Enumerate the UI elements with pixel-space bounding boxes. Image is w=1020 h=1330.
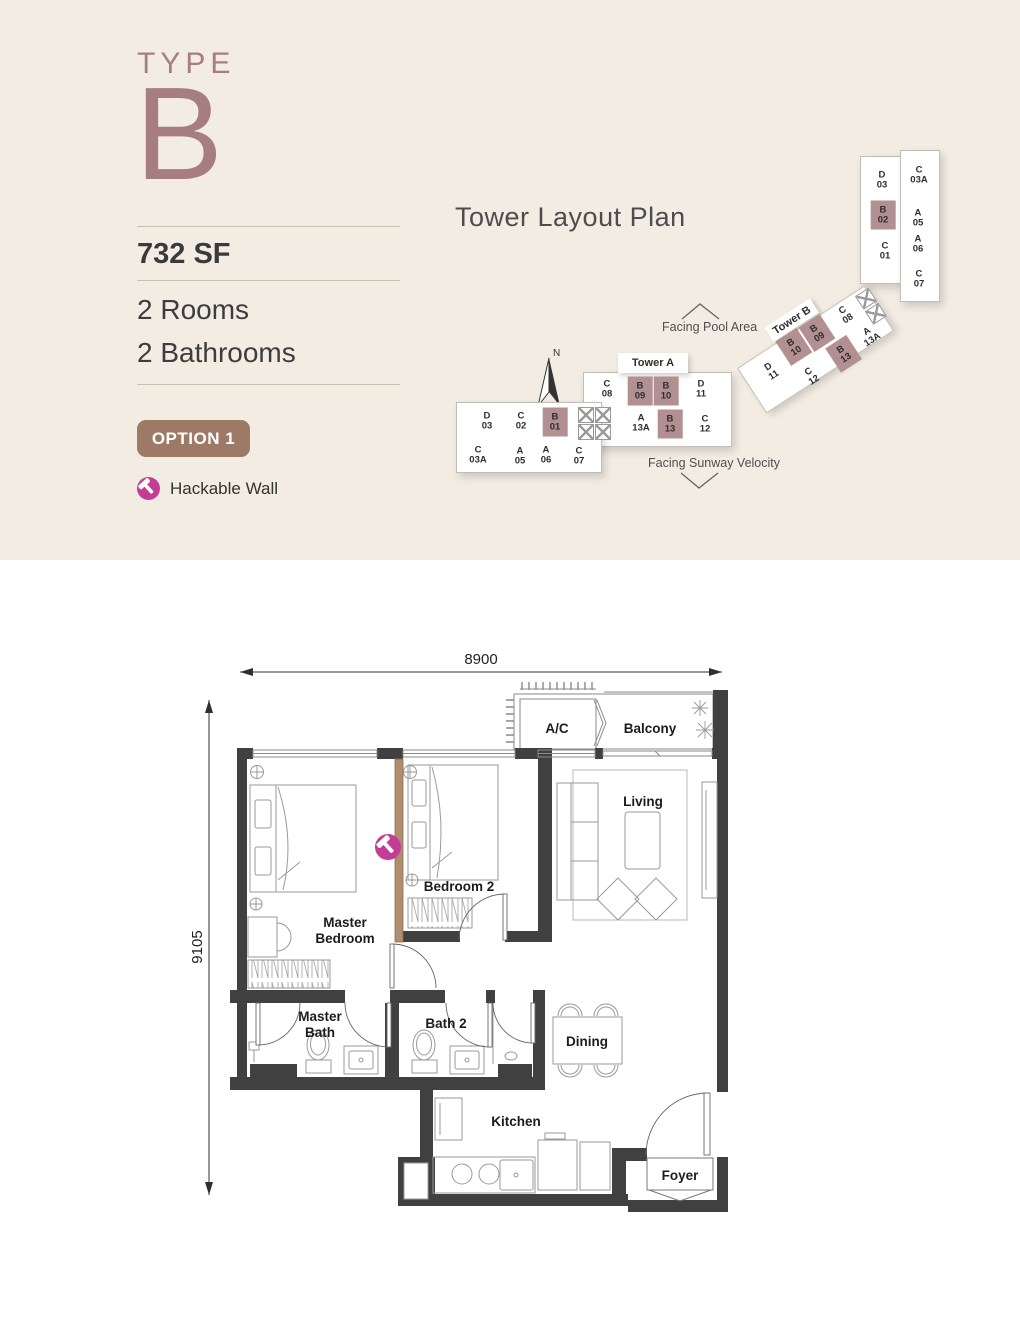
unit-cell-highlighted: B 02 bbox=[871, 201, 896, 230]
unit-cell: C 02 bbox=[516, 412, 527, 431]
unit-cell-highlighted: B 09 bbox=[628, 377, 653, 406]
unit-cell: D 03 bbox=[482, 412, 493, 431]
label-master-bath: Bath bbox=[305, 1025, 335, 1040]
unit-cell: C 08 bbox=[602, 380, 613, 399]
tower-b-diagonal-wing: Tower B D 11 B 10 B 09 C 08 C 12 B 13 A … bbox=[730, 274, 900, 416]
unit-cell-highlighted: B 13 bbox=[658, 410, 683, 439]
windows bbox=[253, 750, 712, 757]
divider bbox=[137, 226, 400, 227]
unit-cell: A 05 bbox=[515, 447, 526, 466]
kitchen-corner-inset bbox=[404, 1163, 428, 1199]
floor-plan-svg: 8900 9105 bbox=[185, 640, 745, 1230]
type-value: B bbox=[135, 68, 223, 200]
unit-cell: A 06 bbox=[541, 446, 552, 465]
hammer-icon bbox=[375, 834, 401, 860]
tower-a-label: Tower A bbox=[618, 353, 688, 373]
balcony-structures bbox=[506, 682, 713, 749]
unit-cell: A 05 bbox=[913, 209, 924, 228]
label-ac: A/C bbox=[545, 721, 569, 736]
lift-core bbox=[595, 407, 611, 423]
unit-cell: C 07 bbox=[914, 270, 925, 289]
unit-cell: A 13A bbox=[632, 414, 649, 433]
unit-cell: D 03 bbox=[877, 171, 888, 190]
lift-core bbox=[578, 407, 594, 423]
chevron-up-icon bbox=[680, 301, 722, 321]
walls bbox=[230, 690, 728, 1212]
unit-cell-highlighted: B 01 bbox=[543, 408, 568, 437]
label-master-bedroom: Bedroom bbox=[315, 931, 374, 946]
label-kitchen: Kitchen bbox=[491, 1114, 541, 1129]
lift-core bbox=[578, 424, 594, 440]
unit-cell: C 03A bbox=[910, 166, 927, 185]
hero-section: TYPE B 732 SF 2 Rooms 2 Bathrooms OPTION… bbox=[0, 0, 1020, 560]
label-living: Living bbox=[623, 794, 663, 809]
divider bbox=[137, 384, 400, 385]
svg-text:N: N bbox=[553, 348, 560, 359]
label-bedroom2: Bedroom 2 bbox=[424, 879, 495, 894]
unit-cell: D 11 bbox=[696, 380, 706, 399]
unit-cell: C 03A bbox=[469, 446, 486, 465]
label-master-bath: Master bbox=[298, 1009, 342, 1024]
bathrooms-count: 2 Bathrooms bbox=[137, 337, 296, 369]
lift-core bbox=[595, 424, 611, 440]
dim-height-label: 9105 bbox=[189, 930, 206, 963]
option-1-button[interactable]: OPTION 1 bbox=[137, 420, 250, 457]
label-bath2: Bath 2 bbox=[425, 1016, 466, 1031]
hammer-icon bbox=[137, 477, 160, 500]
unit-cell: C 07 bbox=[574, 447, 585, 466]
facing-velocity-label: Facing Sunway Velocity bbox=[648, 456, 780, 470]
chevron-down-icon bbox=[679, 471, 721, 491]
unit-cell-highlighted: B 10 bbox=[654, 377, 679, 406]
unit-cell: C 01 bbox=[880, 242, 891, 261]
unit-cell: C 12 bbox=[700, 415, 711, 434]
furniture bbox=[248, 700, 717, 1201]
floor-plan-page: { "colors":{"background":"#f2ece3","acce… bbox=[0, 0, 1020, 1330]
divider bbox=[137, 280, 400, 281]
label-dining: Dining bbox=[566, 1034, 608, 1049]
rooms-count: 2 Rooms bbox=[137, 294, 249, 326]
unit-cell: A 06 bbox=[913, 235, 924, 254]
dimension-arrowheads bbox=[205, 668, 722, 1195]
unit-area: 732 SF bbox=[137, 238, 231, 271]
legend-label: Hackable Wall bbox=[170, 479, 278, 499]
label-balcony: Balcony bbox=[624, 721, 677, 736]
hackable-wall-legend: Hackable Wall bbox=[137, 477, 278, 500]
tower-layout-title: Tower Layout Plan bbox=[455, 202, 686, 233]
label-foyer: Foyer bbox=[662, 1168, 700, 1183]
label-master-bedroom: Master bbox=[323, 915, 367, 930]
facing-pool-label: Facing Pool Area bbox=[662, 320, 757, 334]
dim-width-label: 8900 bbox=[464, 651, 497, 668]
